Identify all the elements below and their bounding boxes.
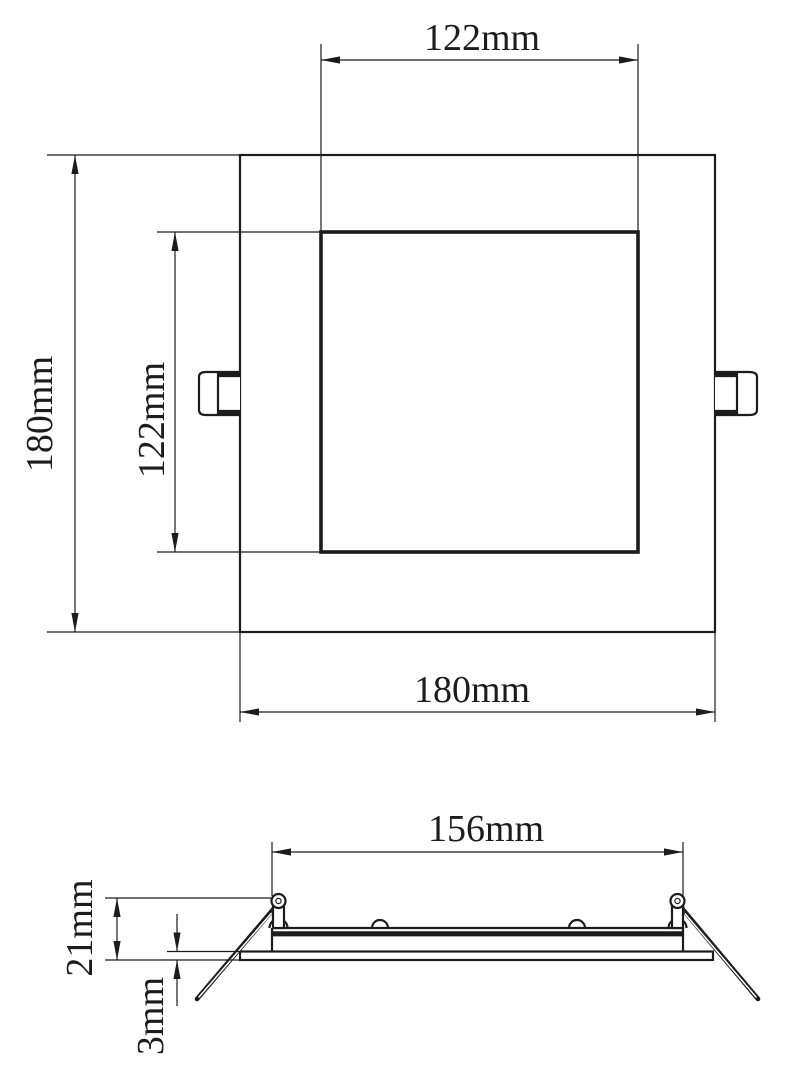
right-mounting-clip	[715, 372, 757, 415]
dim-label-panel-height: 180mm	[19, 356, 61, 472]
dim-recess-depth: 21mm	[59, 879, 271, 976]
panel-flange	[240, 952, 713, 961]
screw-bump	[372, 920, 388, 928]
top-view: 122mm 180mm 122mm 180mm	[19, 17, 757, 722]
dim-label-cutout-height: 122mm	[131, 362, 173, 478]
side-view: 156mm	[59, 808, 758, 1055]
technical-drawing-canvas: 122mm 180mm 122mm 180mm	[0, 0, 787, 1080]
dim-label-cutout-width: 122mm	[424, 17, 540, 59]
dim-panel-width: 180mm	[240, 632, 715, 722]
screw-bump	[569, 920, 585, 928]
left-mounting-clip	[199, 372, 240, 415]
dim-label-flange-thickness: 3mm	[130, 977, 172, 1055]
panel-inner-square	[321, 232, 638, 552]
clip-outline	[199, 372, 240, 415]
clip-pivot-ring	[671, 894, 685, 908]
dim-label-depth: 21mm	[59, 879, 101, 976]
clip-pivot-ring	[272, 894, 286, 908]
dim-label-panel-width: 180mm	[414, 669, 530, 711]
drawing-svg: 122mm 180mm 122mm 180mm	[0, 0, 787, 1080]
dim-body-width: 156mm	[272, 808, 683, 896]
dim-label-body-width: 156mm	[428, 808, 544, 850]
light-body	[197, 894, 758, 999]
dim-flange-thickness: 3mm	[130, 914, 240, 1055]
